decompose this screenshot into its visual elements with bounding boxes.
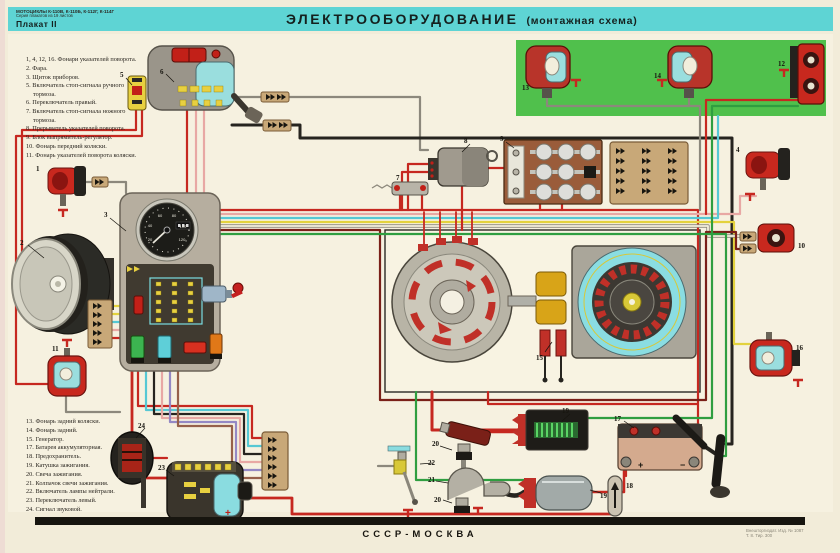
- poster: 20 40 60 80 100 120: [0, 0, 840, 553]
- legend-item: 23. Переключатель левый.: [26, 497, 144, 505]
- turn-lamp-front-left: [48, 166, 86, 217]
- legend-item: 19. Катушка зажигания.: [26, 462, 144, 470]
- speedo-tick: 40: [148, 223, 153, 228]
- panel-red-lamp: [134, 296, 143, 314]
- callout: 12: [778, 60, 786, 68]
- battery-plus-sign: +: [638, 460, 643, 470]
- callout: 20: [434, 496, 442, 504]
- flasher-relay: [428, 148, 497, 186]
- ignition-switch: [202, 283, 243, 302]
- footer-rule: [35, 517, 805, 525]
- handlebar-switch-left: +: [167, 462, 252, 520]
- callout: 19: [562, 407, 570, 415]
- legend-item: 7. Включатель стоп-сигнала ножного тормо…: [26, 108, 144, 125]
- legend-item: 10. Фонарь передний коляски.: [26, 143, 144, 151]
- poster-title: ЭЛЕКТРООБОРУДОВАНИЕ(монтажная схема): [286, 11, 638, 29]
- legend-item: 13. Фонарь задний коляски.: [26, 418, 144, 426]
- legend-item: 8. Прерыватель указателей поворота.: [26, 125, 144, 133]
- callout: 6: [160, 68, 164, 76]
- rectifier-regulator: [504, 140, 602, 204]
- spark-plug-cap-bottom: [448, 468, 510, 515]
- connector-left-switch: [262, 432, 288, 490]
- legend-item: 11. Фонарь указателей поворота коляски.: [26, 152, 144, 160]
- ignition-coil-bottom: [518, 476, 592, 510]
- callout: 20: [432, 440, 440, 448]
- callout: 19: [600, 492, 608, 500]
- header-band: МОТОЦИКЛЫ К-110В, К-110Б, К-112Г, К-114Г…: [8, 7, 833, 31]
- sidecar-front-lamp: [740, 224, 794, 253]
- title-sub: (монтажная схема): [526, 15, 637, 27]
- callout: 22: [428, 459, 436, 467]
- sheet-number: Плакат II: [16, 20, 114, 29]
- battery-minus-sign: −: [680, 460, 685, 470]
- legend-item: 17. Батарея аккумуляторная.: [26, 444, 144, 452]
- footer-city: СССР-МОСКВА: [0, 529, 840, 540]
- legend-bottom: 13. Фонарь задний коляски. 14. Фонарь за…: [26, 418, 144, 515]
- footer-imprint: Внешторгиздат. Изд. № 1087 Т. 8. Тир. 30…: [746, 528, 804, 539]
- callout: 7: [396, 174, 400, 182]
- title-main: ЭЛЕКТРООБОРУДОВАНИЕ: [286, 11, 518, 27]
- callout: 17: [614, 415, 622, 423]
- turn-lamp-front-right: [745, 148, 790, 201]
- callout: 23: [158, 464, 166, 472]
- callout: 4: [736, 146, 740, 154]
- connector-panel-main: [610, 142, 688, 204]
- legend-item: 18. Предохранитель.: [26, 453, 144, 461]
- speedo-tick: 60: [158, 213, 163, 218]
- legend-item: 6. Переключатель правый.: [26, 99, 144, 107]
- callout: 10: [798, 242, 806, 250]
- legend-item: 22. Включатель лампы нейтрали.: [26, 488, 144, 496]
- callout: 13: [522, 84, 530, 92]
- legend-item: 24. Сигнал звуковой.: [26, 506, 144, 514]
- callout: 15: [536, 354, 544, 362]
- speedo-tick: 100: [180, 224, 187, 229]
- stop-switch-foot: [372, 182, 428, 195]
- connector-headlamp: [88, 300, 112, 348]
- callout: 21: [428, 476, 436, 484]
- speedo-tick: 80: [172, 213, 177, 218]
- legend-item: 3. Щиток приборов.: [26, 74, 144, 82]
- fuse: [608, 476, 622, 516]
- generator-stator: [572, 246, 696, 358]
- instrument-panel: 20 40 60 80 100 120: [120, 193, 243, 371]
- callout: 1: [36, 165, 40, 173]
- legend-item: 2. Фара.: [26, 65, 144, 73]
- callout: 18: [626, 482, 634, 490]
- legend-top: 1, 4, 12, 16. Фонари указателей поворота…: [26, 56, 144, 161]
- legend-item: 5. Включатель стоп-сигнала ручного тормо…: [26, 82, 144, 99]
- ignition-coil-top: [512, 410, 588, 450]
- callout: 14: [654, 72, 662, 80]
- header-meta: МОТОЦИКЛЫ К-110В, К-110Б, К-112Г, К-114Г…: [16, 9, 114, 29]
- handlebar-switch-right: [148, 46, 264, 124]
- neutral-switch: [388, 446, 418, 517]
- series-line2: Серия плакатов из 19 листов: [16, 14, 114, 19]
- imprint-line2: Т. 8. Тир. 300: [746, 533, 804, 538]
- callout: 16: [796, 344, 804, 352]
- legend-item: 14. Фонарь задний.: [26, 427, 144, 435]
- callout: 9: [500, 135, 504, 143]
- legend-item: 20. Свеча зажигания.: [26, 471, 144, 479]
- callout: 3: [104, 211, 108, 219]
- legend-item: 21. Колпачок свечи зажигания.: [26, 480, 144, 488]
- legend-item: 15. Генератор.: [26, 436, 144, 444]
- turn-lamp-rear-right: [750, 332, 803, 387]
- speedo-tick: 20: [148, 237, 153, 242]
- callout: 8: [464, 137, 468, 145]
- callout: 2: [20, 239, 24, 247]
- legend-item: 1, 4, 12, 16. Фонари указателей поворота…: [26, 56, 144, 64]
- callout: 11: [52, 345, 59, 353]
- legend-item: 9. Блок выпрямитель-регулятор.: [26, 134, 144, 142]
- speedo-tick: 120: [179, 237, 186, 242]
